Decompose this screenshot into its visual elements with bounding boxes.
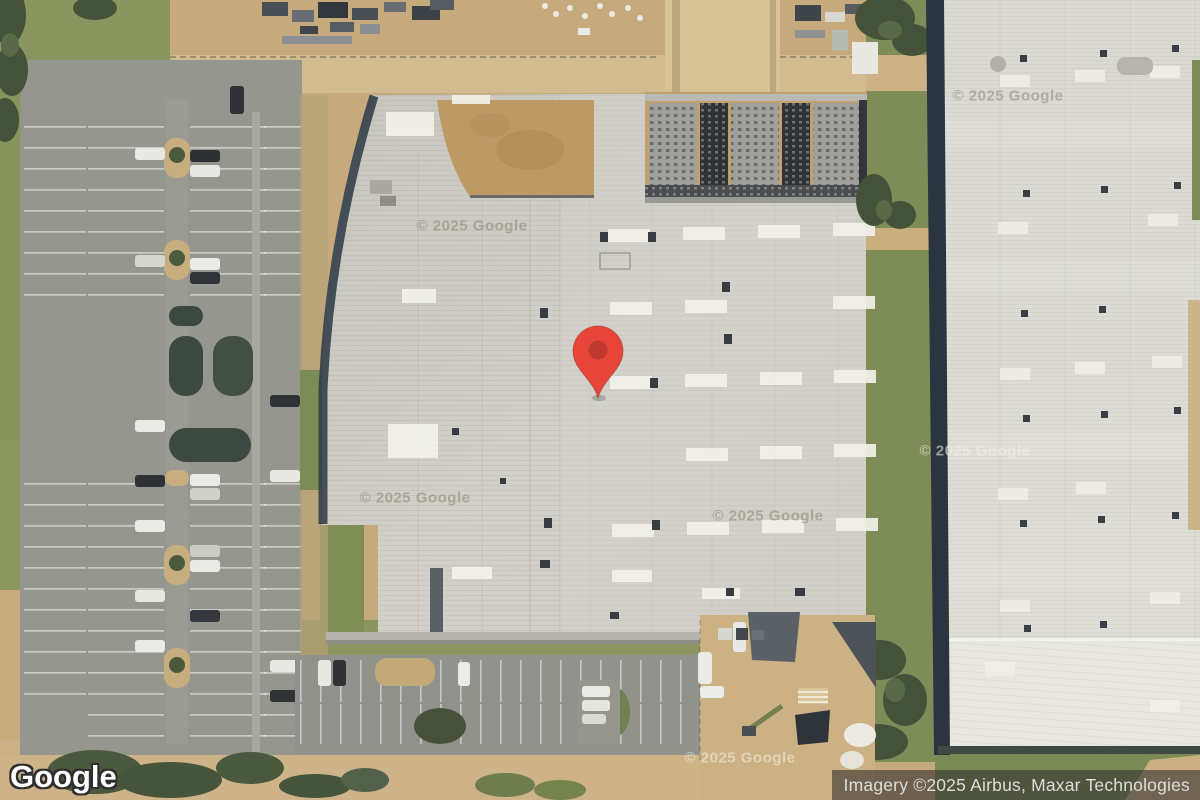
- map-pin-dot: [589, 341, 608, 360]
- imagery-attribution: Imagery ©2025 Airbus, Maxar Technologies: [832, 770, 1200, 800]
- satellite-map-viewport: © 2025 Google © 2025 Google © 2025 Googl…: [0, 0, 1200, 800]
- imagery-attribution-text: Imagery ©2025 Airbus, Maxar Technologies: [844, 775, 1190, 796]
- satellite-map-canvas[interactable]: [0, 0, 1200, 800]
- east-warehouse-roof: [926, 0, 1200, 755]
- google-logo[interactable]: Google: [10, 761, 117, 792]
- rooftop-hvac-units: [645, 92, 867, 203]
- lumber-stacks: [798, 688, 828, 704]
- parking-lot-west: [20, 60, 302, 762]
